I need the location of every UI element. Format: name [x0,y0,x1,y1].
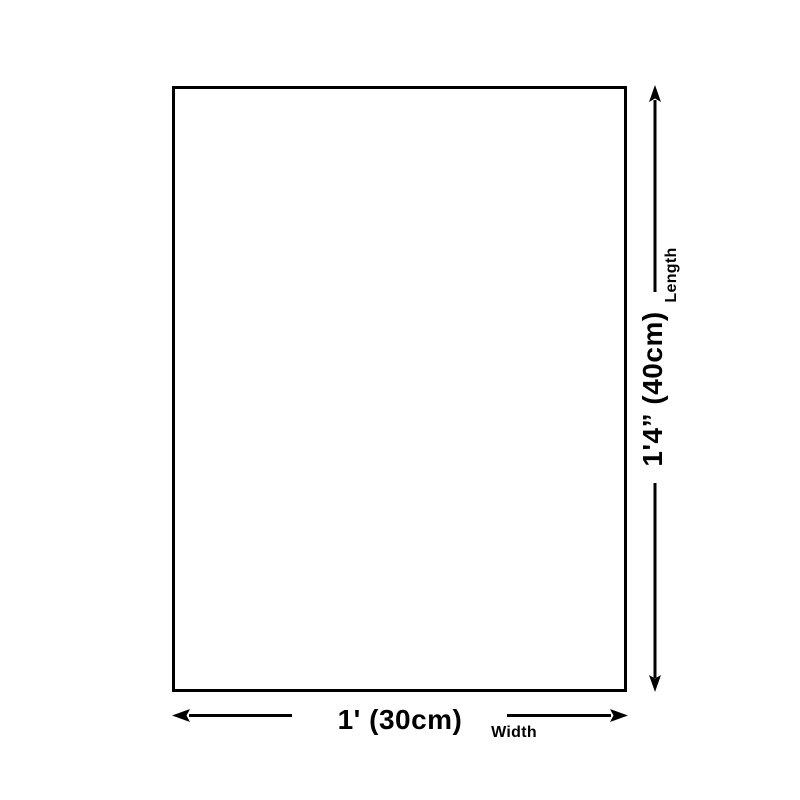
product-rectangle [174,88,626,691]
dimension-diagram: 1'4” (40cm) Length 1' (30cm) Width [0,0,800,800]
arrow-right-icon [610,709,628,722]
length-value: 1'4” (40cm) [639,311,667,466]
diagram-shapes [0,0,800,800]
arrow-up-icon [649,85,661,102]
arrow-left-icon [172,709,190,722]
width-value: 1' (30cm) [338,706,463,734]
length-label: Length [664,247,680,302]
width-label: Width [491,725,537,741]
